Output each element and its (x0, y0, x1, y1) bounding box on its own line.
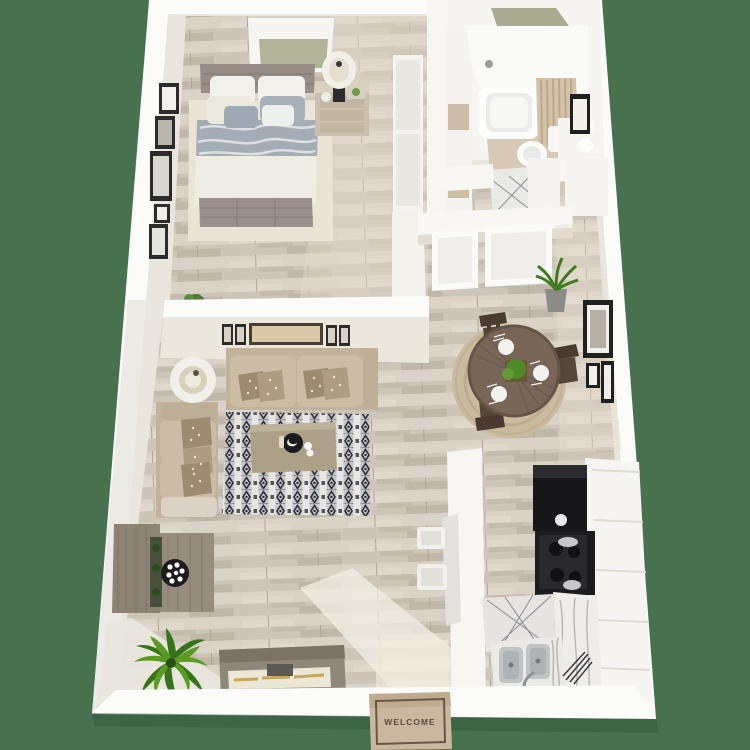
svg-text:WELCOME: WELCOME (384, 717, 435, 727)
